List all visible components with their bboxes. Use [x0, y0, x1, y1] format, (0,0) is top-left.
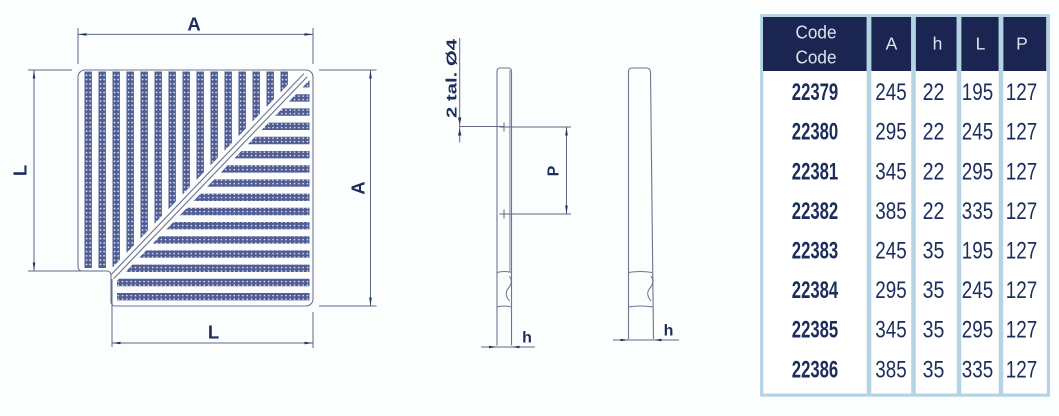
- svg-text:22: 22: [923, 79, 945, 106]
- svg-text:Code: Code: [796, 23, 837, 43]
- svg-text:385: 385: [875, 356, 906, 383]
- svg-text:295: 295: [962, 158, 993, 185]
- svg-text:245: 245: [875, 79, 906, 106]
- svg-text:2 tal. Ø4: 2 tal. Ø4: [445, 39, 461, 118]
- svg-text:35: 35: [923, 317, 945, 344]
- svg-text:345: 345: [875, 158, 906, 185]
- svg-text:245: 245: [962, 277, 993, 304]
- svg-text:A: A: [886, 34, 898, 54]
- svg-text:35: 35: [923, 277, 945, 304]
- svg-text:A: A: [348, 181, 369, 194]
- svg-text:335: 335: [962, 356, 993, 383]
- svg-text:295: 295: [962, 317, 993, 344]
- svg-text:245: 245: [962, 119, 993, 146]
- svg-text:127: 127: [1006, 79, 1037, 106]
- svg-text:h: h: [522, 330, 532, 347]
- svg-text:22384: 22384: [792, 277, 839, 304]
- svg-text:22: 22: [923, 198, 945, 225]
- svg-text:h: h: [933, 34, 943, 54]
- svg-text:127: 127: [1006, 198, 1037, 225]
- svg-text:127: 127: [1006, 158, 1037, 185]
- svg-text:L: L: [10, 165, 31, 176]
- svg-text:22385: 22385: [792, 317, 838, 344]
- svg-text:35: 35: [923, 238, 945, 265]
- svg-text:195: 195: [962, 238, 993, 265]
- svg-text:h: h: [664, 323, 674, 340]
- svg-text:22381: 22381: [792, 158, 838, 185]
- svg-text:295: 295: [875, 119, 906, 146]
- svg-text:22: 22: [923, 119, 945, 146]
- svg-text:127: 127: [1006, 119, 1037, 146]
- svg-text:335: 335: [962, 198, 993, 225]
- svg-text:195: 195: [962, 79, 993, 106]
- svg-text:22383: 22383: [792, 238, 838, 265]
- svg-text:P: P: [546, 165, 563, 176]
- svg-text:127: 127: [1006, 277, 1037, 304]
- svg-text:127: 127: [1006, 356, 1037, 383]
- svg-text:L: L: [208, 322, 219, 343]
- svg-text:245: 245: [875, 238, 906, 265]
- svg-text:22382: 22382: [792, 198, 838, 225]
- svg-text:Code: Code: [796, 48, 837, 68]
- svg-text:127: 127: [1006, 317, 1037, 344]
- svg-text:295: 295: [875, 277, 906, 304]
- svg-text:22: 22: [923, 158, 945, 185]
- svg-text:A: A: [187, 14, 200, 35]
- svg-text:L: L: [976, 34, 986, 54]
- svg-text:35: 35: [923, 356, 945, 383]
- svg-text:22380: 22380: [792, 119, 838, 146]
- svg-text:22386: 22386: [792, 356, 838, 383]
- svg-text:345: 345: [875, 317, 906, 344]
- svg-text:127: 127: [1006, 238, 1037, 265]
- svg-text:385: 385: [875, 198, 906, 225]
- svg-text:P: P: [1016, 34, 1028, 54]
- svg-text:22379: 22379: [792, 79, 838, 106]
